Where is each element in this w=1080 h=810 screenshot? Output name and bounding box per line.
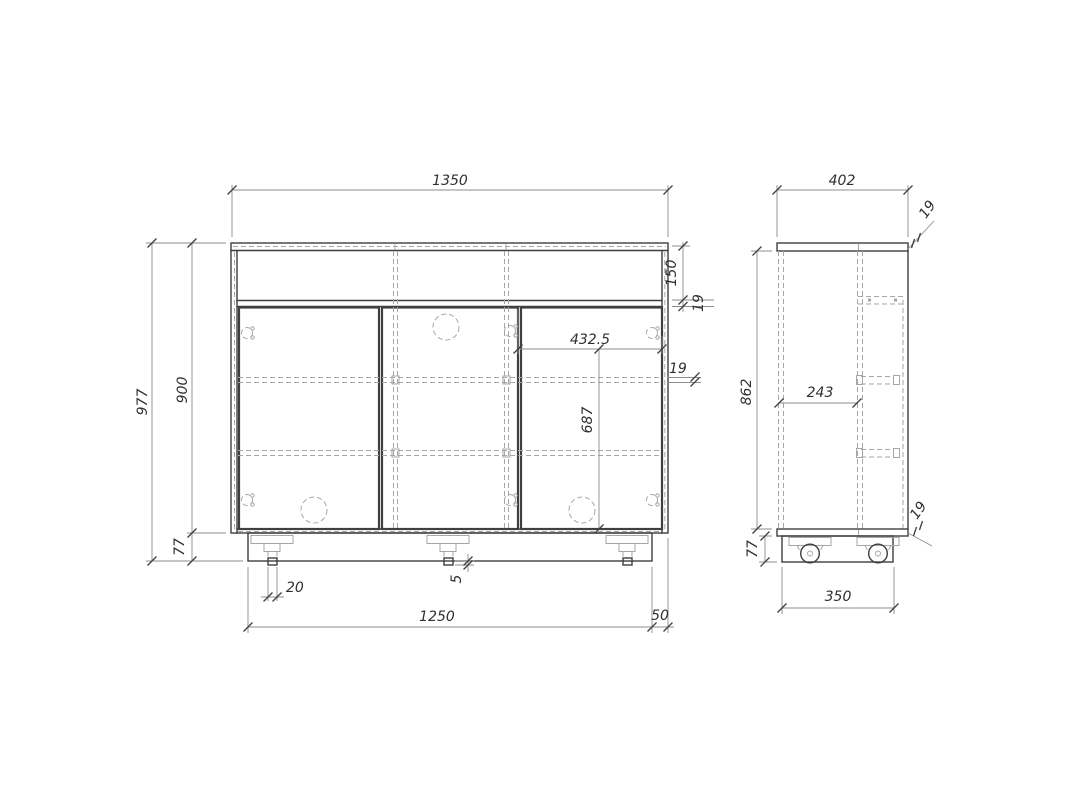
hinge-icon [505,325,518,337]
hinge-icon [242,494,255,506]
door-middle [382,308,518,530]
dim-label-rail-thickness: 19 [691,294,707,312]
dim-front-shelf-thickness: 19 [667,361,701,387]
dim-label-caster-protrusion: 5 [449,574,465,583]
dim-front-door-height: 687 [580,345,604,534]
dim-side-plinth-depth: 350 [778,567,899,614]
front-hidden-partitions [394,251,509,530]
dim-front-door-width: 432.5 [514,309,667,354]
dim-label-caster-stem-width: 20 [286,580,304,596]
dim-label-body-height: 900 [175,377,191,404]
dim-front-drawer-height: 150 19 [664,242,714,313]
dim-label-plinth-height: 77 [172,538,188,556]
caster-wheel [789,538,831,563]
dim-label-overall-depth: 402 [829,173,856,189]
dim-label-side-plinth-height: 77 [745,540,761,558]
cable-hole [569,497,595,523]
dim-side-plinth-height: 77 [745,532,777,567]
dim-label-overall-width: 1350 [432,173,468,189]
dim-label-overall-height: 977 [135,389,151,416]
shelf-pin [894,449,900,458]
dim-label-drawer-height: 150 [664,260,680,287]
dim-label-interior-height: 862 [739,379,755,406]
front-view: 1350 977 900 77 150 19 432.5 687 [135,173,714,633]
front-hidden-shelves [238,376,661,457]
side-view: 402 19 862 243 19 77 [739,173,939,614]
side-bottom-panel [777,529,908,536]
dim-side-partition-depth: 243 [775,385,862,408]
front-cabinet-body [231,243,668,533]
hinge-icon [647,494,660,506]
cable-hole [301,497,327,523]
fitting-dot [894,299,897,302]
dim-front-caster-stem-width: 20 [261,567,304,602]
dim-front-body-height: 900 77 [172,239,226,566]
side-cabinet-body [777,243,908,536]
fitting-dot [868,299,871,302]
dim-side-overall-depth: 402 [773,173,913,237]
dim-label-plinth-width: 1250 [419,609,455,625]
hinge-icon [647,327,660,339]
dim-label-door-height: 687 [580,407,596,434]
dim-side-top-thickness: 19 [908,198,939,249]
shelf-pin [894,376,900,385]
dim-label-shelf-thickness: 19 [669,361,687,377]
side-top-panel [777,243,908,251]
dim-label-top-thickness: 19 [916,198,939,222]
dim-side-bottom-thickness: 19 [907,499,932,546]
dim-label-plinth-depth: 350 [825,589,852,605]
dim-side-interior-height: 862 [739,247,772,534]
technical-drawing: 1350 977 900 77 150 19 432.5 687 [0,0,1080,810]
dim-label-bottom-thickness: 19 [907,499,930,523]
dim-label-partition-depth: 243 [807,385,834,401]
dim-label-plinth-inset: 50 [651,608,669,624]
cable-hole [433,314,459,340]
dim-front-plinth-width: 1250 50 [244,538,675,633]
plinth-front [248,533,652,561]
front-plinth [248,533,652,561]
dim-label-door-width: 432.5 [570,332,610,348]
hinge-icon [505,494,518,506]
hinge-icon [242,327,255,339]
door-left [239,308,379,530]
front-holes [301,314,595,523]
side-casters [789,538,899,563]
front-body-outline [231,243,668,533]
dim-front-overall-width: 1350 [228,173,673,237]
